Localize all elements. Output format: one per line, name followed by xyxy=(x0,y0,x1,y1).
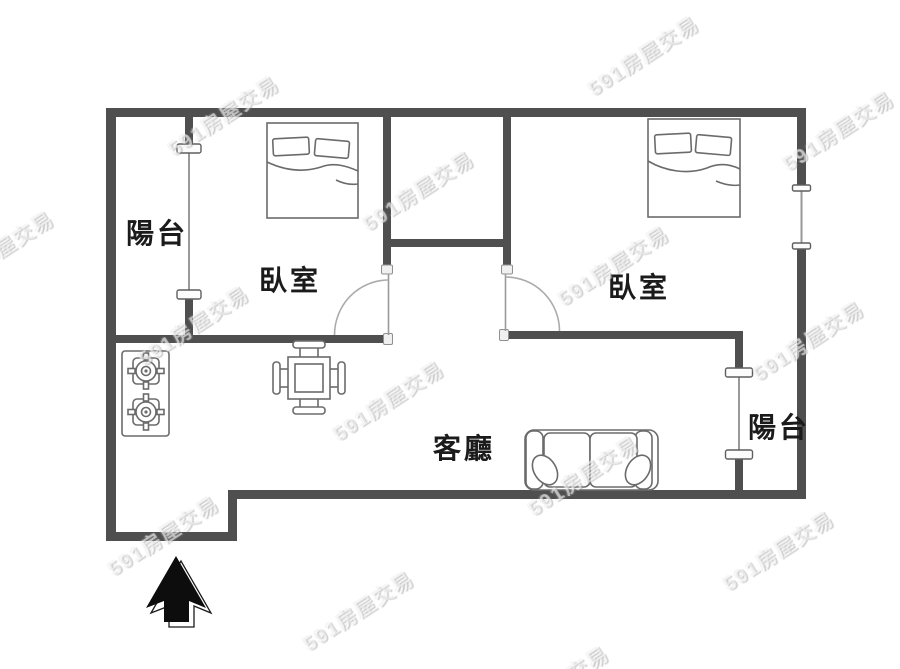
wall-left xyxy=(106,108,116,541)
wall-right-lower xyxy=(797,249,806,499)
north-arrow-icon xyxy=(146,556,211,627)
door-icon-bedroom-right xyxy=(500,265,560,341)
wall-top xyxy=(106,108,806,117)
wall-kitchen-top xyxy=(106,335,390,343)
dining-table-icon xyxy=(273,341,345,414)
room-label-bedroom-right: 臥室 xyxy=(608,271,670,303)
window-icon-right-wall xyxy=(793,185,811,249)
room-label-living-room: 客廳 xyxy=(433,432,495,464)
room-label-balcony-left: 陽台 xyxy=(126,217,188,249)
chair-top xyxy=(293,341,325,358)
wall-bottom-left xyxy=(106,532,237,541)
room-label-bedroom-left: 臥室 xyxy=(259,264,321,296)
wall-balcony-right-stub-bottom xyxy=(735,459,743,490)
wall-bottom-main xyxy=(228,490,806,499)
wall-bedroom-right-left xyxy=(503,117,511,273)
wall-bedroom-right-bottom xyxy=(508,331,743,339)
sofa-icon xyxy=(525,430,658,490)
wall-balcony-left-stub-bottom xyxy=(185,299,193,336)
floor-plan-svg: 陽台 臥室 臥室 客廳 陽台 xyxy=(0,0,900,669)
wall-bedroom-left-right xyxy=(383,117,391,273)
wall-balcony-left-stub-top xyxy=(185,117,193,144)
bed-icon-right xyxy=(648,119,740,217)
stove-icon xyxy=(122,351,169,436)
room-label-balcony-right: 陽台 xyxy=(748,411,810,443)
door-icon-bedroom-left xyxy=(335,265,393,345)
floor-plan-image: 陽台 臥室 臥室 客廳 陽台 591房屋交易591房屋交易591房屋交易591房… xyxy=(0,0,900,669)
wall-balcony-right-stub-top xyxy=(735,331,743,368)
wall-vestibule-bottom xyxy=(383,239,511,247)
bed-icon-left xyxy=(267,123,358,218)
wall-right-upper xyxy=(797,108,806,185)
